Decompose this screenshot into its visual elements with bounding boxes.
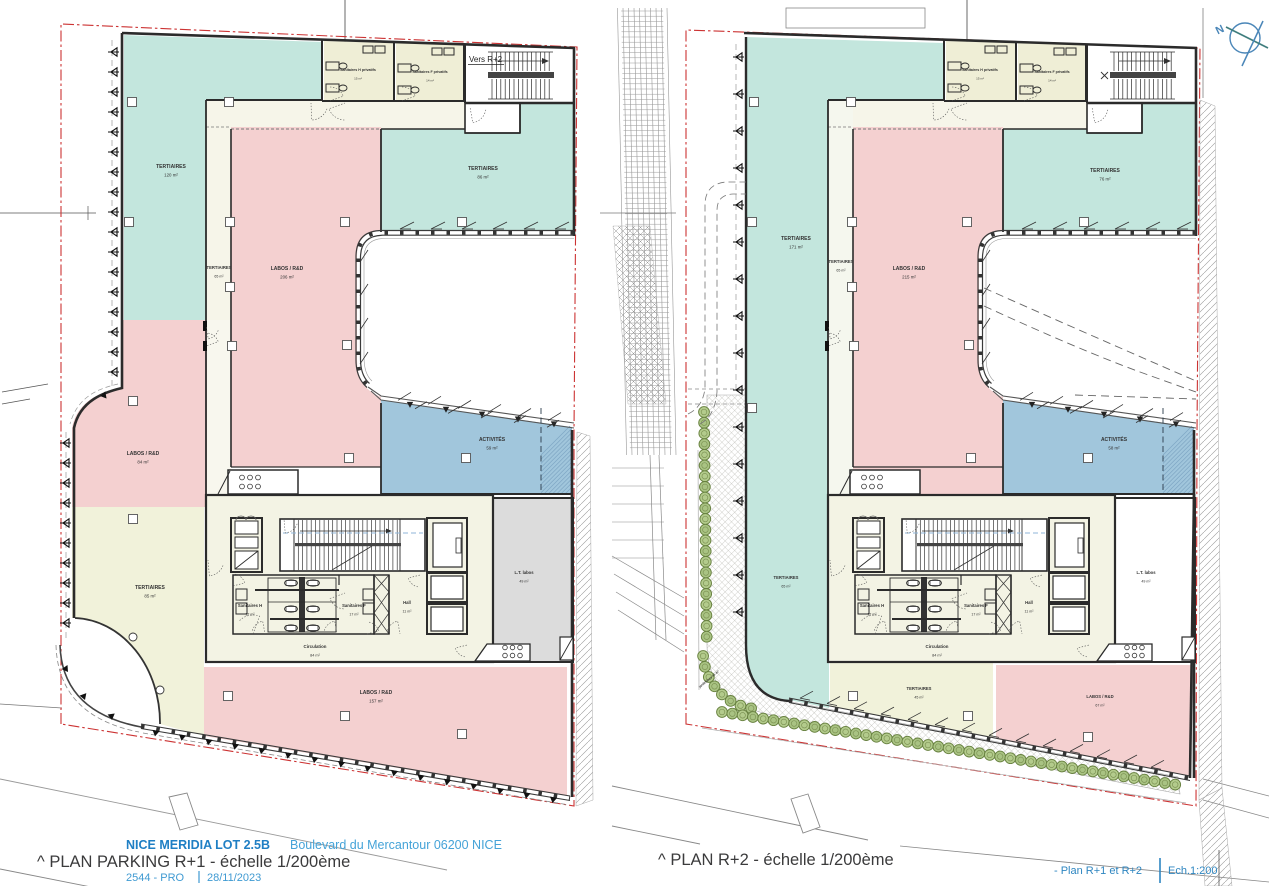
svg-text:49 m²: 49 m² xyxy=(1141,580,1151,584)
svg-text:65 m²: 65 m² xyxy=(836,269,846,273)
svg-text:Sanitaires H: Sanitaires H xyxy=(860,603,884,608)
svg-text:65 m²: 65 m² xyxy=(214,275,224,279)
svg-text:Circulation: Circulation xyxy=(926,644,949,649)
svg-text:- Plan R+1 et R+2: - Plan R+1 et R+2 xyxy=(1054,865,1142,877)
svg-text:45 m²: 45 m² xyxy=(914,696,924,700)
svg-text:Ech.1:200: Ech.1:200 xyxy=(1168,865,1218,877)
svg-text:85 m²: 85 m² xyxy=(144,594,156,599)
svg-text:LABOS / R&D: LABOS / R&D xyxy=(893,266,926,272)
svg-text:Sanitaires F: Sanitaires F xyxy=(964,603,988,608)
svg-text:11 m²: 11 m² xyxy=(1025,610,1035,614)
svg-text:TERTIAIRES: TERTIAIRES xyxy=(907,686,932,691)
svg-text:17 m²: 17 m² xyxy=(867,613,877,617)
svg-text:TERTIAIRES: TERTIAIRES xyxy=(156,164,186,170)
svg-text:2544 - PRO: 2544 - PRO xyxy=(126,872,185,884)
svg-text:Sanitaires F privatifs: Sanitaires F privatifs xyxy=(1034,70,1069,74)
svg-text:84 m²: 84 m² xyxy=(310,654,320,658)
svg-text:15 m²: 15 m² xyxy=(354,77,362,81)
svg-text:TERTIAIRES: TERTIAIRES xyxy=(829,259,854,264)
svg-text:TERTIAIRES: TERTIAIRES xyxy=(135,585,165,591)
svg-text:LABOS / R&D: LABOS / R&D xyxy=(1086,694,1113,699)
svg-text:Hall: Hall xyxy=(1025,600,1033,605)
svg-text:11 m²: 11 m² xyxy=(403,610,413,614)
svg-text:17 m²: 17 m² xyxy=(245,613,255,617)
svg-text:ACTIVITÉS: ACTIVITÉS xyxy=(1101,435,1128,443)
svg-text:^ PLAN PARKING R+1 - échelle 1: ^ PLAN PARKING R+1 - échelle 1/200ème xyxy=(37,853,350,871)
svg-text:67 m²: 67 m² xyxy=(1095,704,1105,708)
svg-text:Circulation: Circulation xyxy=(304,644,327,649)
svg-text:Boulevard du Mercantour 06200: Boulevard du Mercantour 06200 NICE xyxy=(290,838,502,852)
svg-text:TERTIAIRES: TERTIAIRES xyxy=(1090,168,1120,174)
svg-text:14 m²: 14 m² xyxy=(426,79,434,83)
svg-text:Hall: Hall xyxy=(403,600,411,605)
svg-text:L.T. labos: L.T. labos xyxy=(514,570,534,575)
svg-text:L.T. labos: L.T. labos xyxy=(1136,570,1156,575)
svg-text:215 m²: 215 m² xyxy=(902,275,916,280)
svg-text:^ PLAN R+2 - échelle 1/200ème: ^ PLAN R+2 - échelle 1/200ème xyxy=(658,851,894,869)
svg-text:NICE MERIDIA LOT 2.5B: NICE MERIDIA LOT 2.5B xyxy=(126,838,270,852)
svg-text:LABOS / R&D: LABOS / R&D xyxy=(360,690,393,696)
svg-text:LABOS / R&D: LABOS / R&D xyxy=(271,266,304,272)
svg-text:86 m²: 86 m² xyxy=(477,175,489,180)
svg-text:28/11/2023: 28/11/2023 xyxy=(207,872,261,884)
svg-text:120 m²: 120 m² xyxy=(164,173,178,178)
svg-text:59 m²: 59 m² xyxy=(486,446,498,451)
svg-text:157 m²: 157 m² xyxy=(369,699,383,704)
svg-text:Sanitaires F: Sanitaires F xyxy=(342,603,366,608)
svg-text:Sanitaires F privatifs: Sanitaires F privatifs xyxy=(412,70,447,74)
svg-text:LABOS / R&D: LABOS / R&D xyxy=(127,451,160,457)
svg-text:171 m²: 171 m² xyxy=(789,245,803,250)
svg-text:49 m²: 49 m² xyxy=(519,580,529,584)
svg-text:65 m²: 65 m² xyxy=(781,585,791,589)
svg-text:Sanitaires H: Sanitaires H xyxy=(238,603,262,608)
svg-text:17 m²: 17 m² xyxy=(971,613,981,617)
svg-text:17 m²: 17 m² xyxy=(349,613,359,617)
svg-text:TERTIAIRES: TERTIAIRES xyxy=(468,166,498,172)
svg-text:TERTIAIRES: TERTIAIRES xyxy=(781,236,811,242)
svg-text:Sanitaires H privatifs: Sanitaires H privatifs xyxy=(962,68,998,72)
svg-text:TERTIAIRES: TERTIAIRES xyxy=(207,265,232,270)
svg-text:14 m²: 14 m² xyxy=(1048,79,1056,83)
svg-text:76 m²: 76 m² xyxy=(1099,177,1111,182)
svg-text:TERTIAIRES: TERTIAIRES xyxy=(774,575,799,580)
svg-text:84 m²: 84 m² xyxy=(932,654,942,658)
svg-text:84 m²: 84 m² xyxy=(137,460,149,465)
svg-text:ACTIVITÉS: ACTIVITÉS xyxy=(479,435,506,443)
svg-text:15 m²: 15 m² xyxy=(976,77,984,81)
svg-text:Sanitaires H privatifs: Sanitaires H privatifs xyxy=(340,68,376,72)
svg-text:58 m²: 58 m² xyxy=(1108,446,1120,451)
svg-text:206 m²: 206 m² xyxy=(280,275,294,280)
svg-text:Vers R+2: Vers R+2 xyxy=(469,55,503,64)
